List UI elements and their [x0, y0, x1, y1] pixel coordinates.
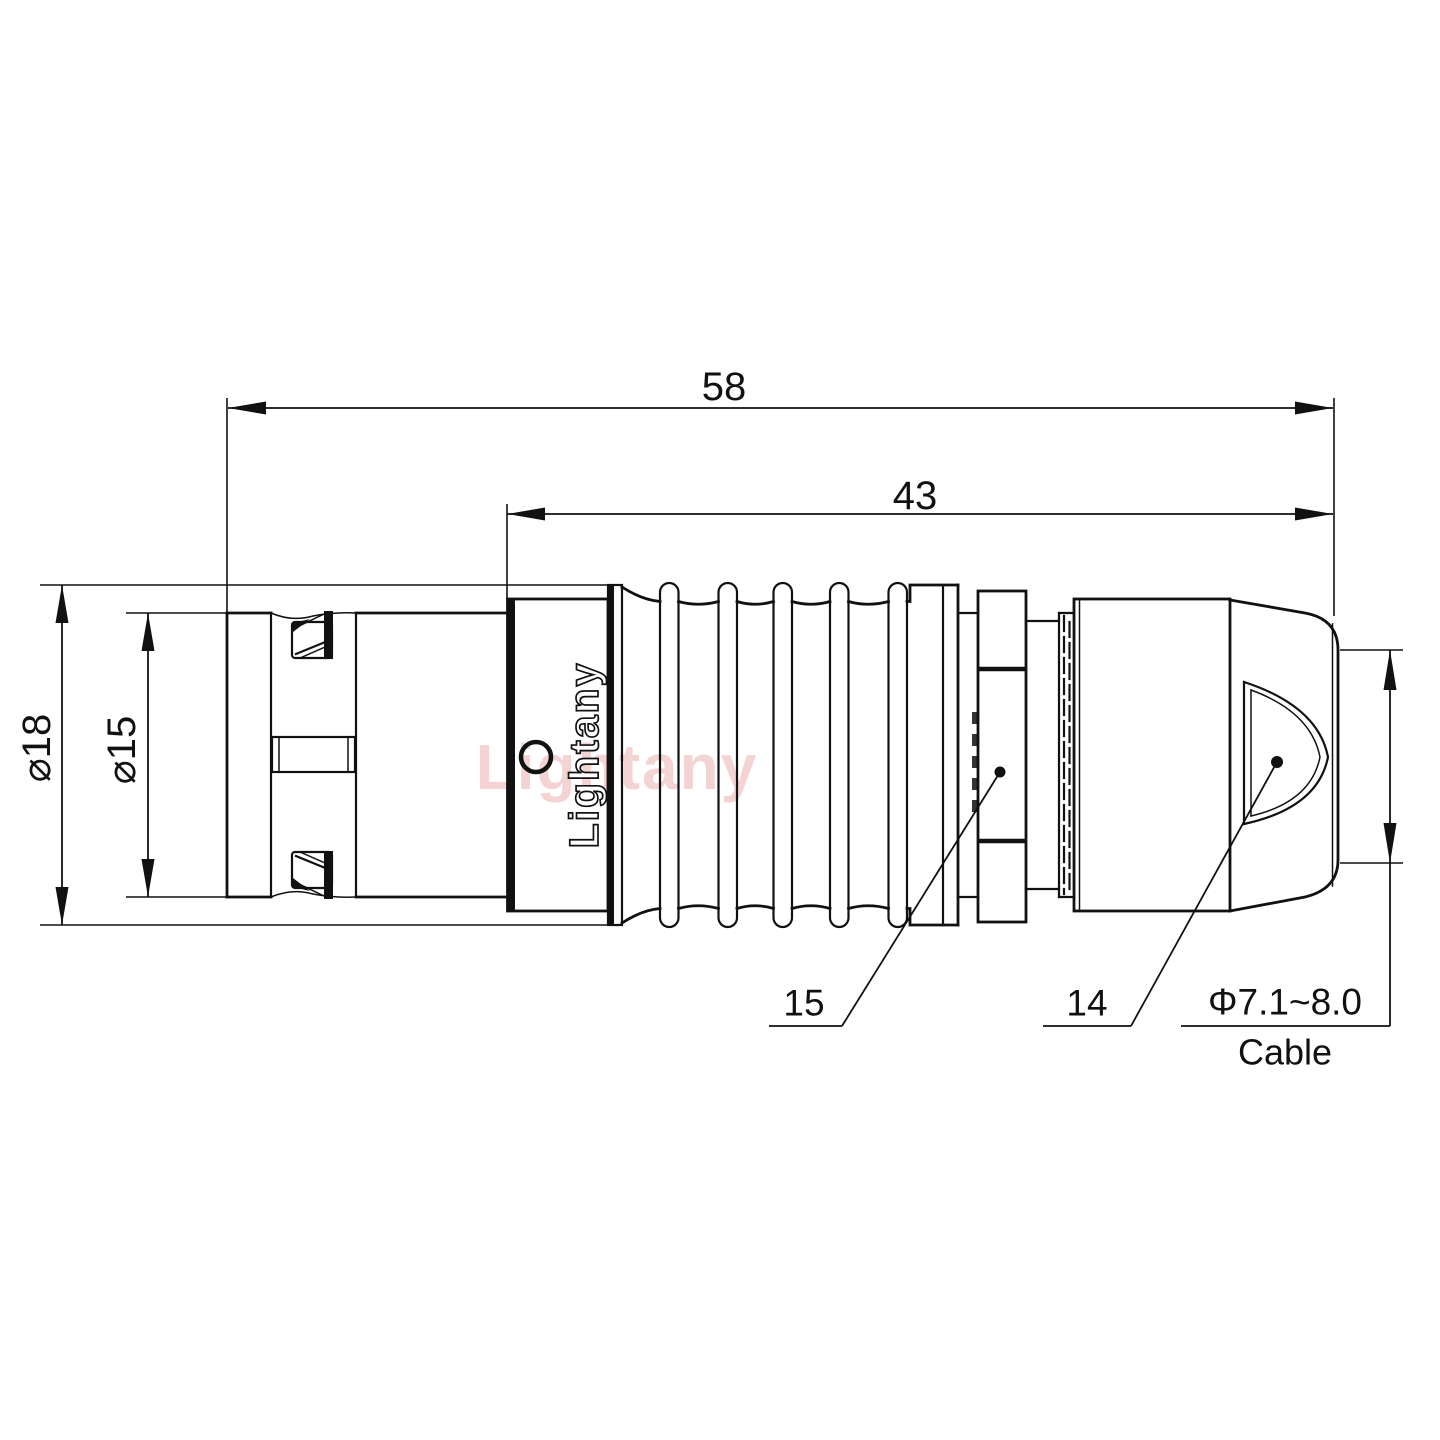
connector-drawing: Lightany 58 43 ⌀18 ⌀15 — [0, 0, 1440, 1440]
dimension-front-diameter: ⌀15 — [100, 613, 227, 897]
watermark-text: Lightany — [476, 731, 759, 803]
body-marking-text: Lightany — [561, 662, 607, 849]
cable-entry-detail — [1244, 682, 1328, 824]
dimension-cable: Φ7.1~8.0 Cable — [1181, 650, 1403, 1073]
part-15-label: 15 — [783, 983, 824, 1024]
end-cap — [1230, 600, 1338, 911]
part-14-label: 14 — [1066, 983, 1107, 1024]
latch-clip-top — [271, 611, 356, 659]
technical-drawing-page: Lightany 58 43 ⌀18 ⌀15 — [0, 0, 1440, 1440]
latch-clip-bottom — [271, 851, 356, 899]
boot-rib — [774, 583, 793, 927]
dimension-rear-length: 43 — [507, 474, 1333, 598]
callout-part-15: 15 — [769, 772, 1000, 1026]
crimp-section — [1026, 613, 1074, 897]
dim-58-label: 58 — [702, 365, 747, 409]
latch-window-band — [272, 737, 355, 772]
clamp-nut — [958, 591, 1026, 922]
dim-d18-label: ⌀18 — [15, 714, 59, 783]
dim-43-label: 43 — [893, 474, 938, 518]
dimension-overall-length: 58 — [227, 365, 1334, 616]
cable-range-label: Φ7.1~8.0 — [1208, 982, 1362, 1023]
boot-rib — [889, 583, 908, 927]
backshell — [1074, 599, 1338, 911]
connector-front-tube — [227, 611, 507, 899]
dim-d15-label: ⌀15 — [100, 716, 144, 785]
boot-rib — [830, 583, 849, 927]
cable-word-label: Cable — [1238, 1032, 1332, 1073]
